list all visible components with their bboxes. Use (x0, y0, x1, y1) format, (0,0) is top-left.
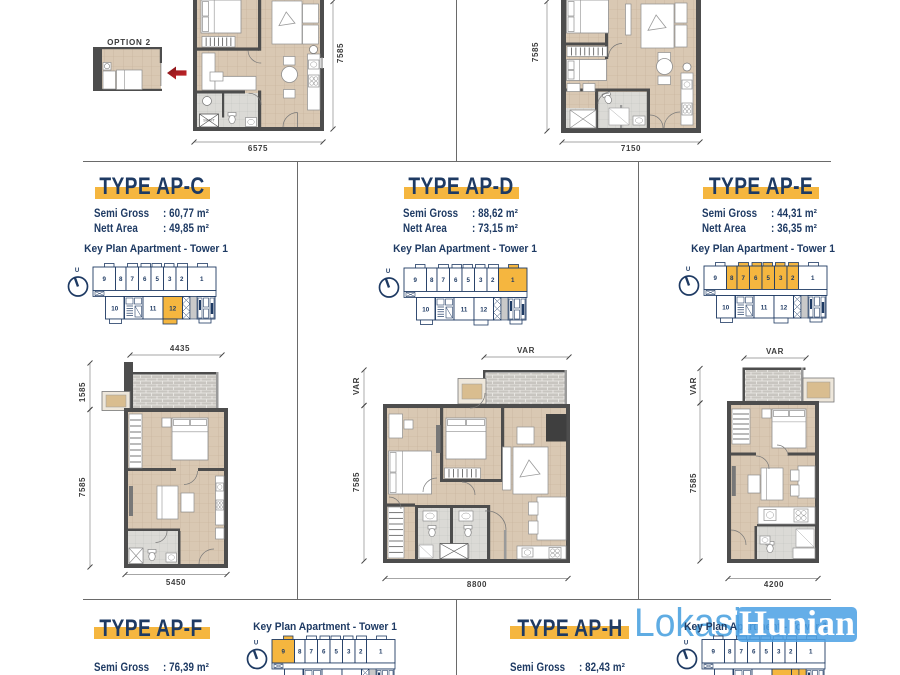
svg-text:9: 9 (414, 277, 418, 284)
svg-text:U: U (386, 269, 390, 275)
svg-text:9: 9 (282, 649, 286, 656)
svg-text:6: 6 (752, 649, 756, 656)
svg-text:U: U (254, 641, 258, 647)
svg-text:SHAFT: SHAFT (203, 119, 215, 123)
svg-text:1: 1 (200, 276, 204, 283)
svg-text:U: U (686, 267, 690, 273)
svg-text:1: 1 (379, 649, 383, 656)
svg-text:1: 1 (811, 275, 815, 282)
svg-text:5: 5 (467, 277, 471, 284)
svg-text:12: 12 (480, 307, 487, 314)
svg-text:9: 9 (712, 649, 716, 656)
svg-text:6: 6 (454, 277, 458, 284)
svg-text:7: 7 (740, 649, 744, 656)
svg-text:2: 2 (180, 276, 184, 283)
svg-text:U: U (684, 641, 688, 647)
svg-text:2: 2 (789, 649, 793, 656)
svg-text:3: 3 (777, 649, 781, 656)
svg-text:1: 1 (511, 277, 515, 284)
svg-text:6: 6 (322, 649, 326, 656)
svg-text:2: 2 (791, 275, 795, 282)
svg-text:7: 7 (131, 276, 135, 283)
svg-text:6: 6 (754, 275, 758, 282)
svg-text:8: 8 (430, 277, 434, 284)
svg-text:7: 7 (442, 277, 446, 284)
svg-text:10: 10 (722, 305, 729, 312)
svg-text:8: 8 (730, 275, 734, 282)
svg-text:11: 11 (461, 307, 468, 314)
svg-text:9: 9 (103, 276, 107, 283)
svg-text:8: 8 (119, 276, 123, 283)
svg-text:6: 6 (143, 276, 147, 283)
svg-text:5: 5 (156, 276, 160, 283)
svg-text:12: 12 (780, 305, 787, 312)
svg-text:5: 5 (767, 275, 771, 282)
svg-text:10: 10 (422, 307, 429, 314)
svg-text:7: 7 (742, 275, 746, 282)
svg-text:3: 3 (779, 275, 783, 282)
svg-text:2: 2 (491, 277, 495, 284)
svg-text:U: U (75, 268, 79, 274)
svg-text:11: 11 (150, 306, 157, 313)
svg-text:7: 7 (310, 649, 314, 656)
svg-text:12: 12 (169, 306, 176, 313)
svg-text:3: 3 (479, 277, 483, 284)
svg-text:2: 2 (359, 649, 363, 656)
svg-text:5: 5 (335, 649, 339, 656)
svg-text:9: 9 (714, 275, 718, 282)
svg-text:8: 8 (298, 649, 302, 656)
svg-text:10: 10 (111, 306, 118, 313)
svg-text:11: 11 (761, 305, 768, 312)
svg-text:1: 1 (809, 649, 813, 656)
svg-text:8: 8 (728, 649, 732, 656)
svg-text:5: 5 (765, 649, 769, 656)
svg-text:3: 3 (168, 276, 172, 283)
svg-text:3: 3 (347, 649, 351, 656)
